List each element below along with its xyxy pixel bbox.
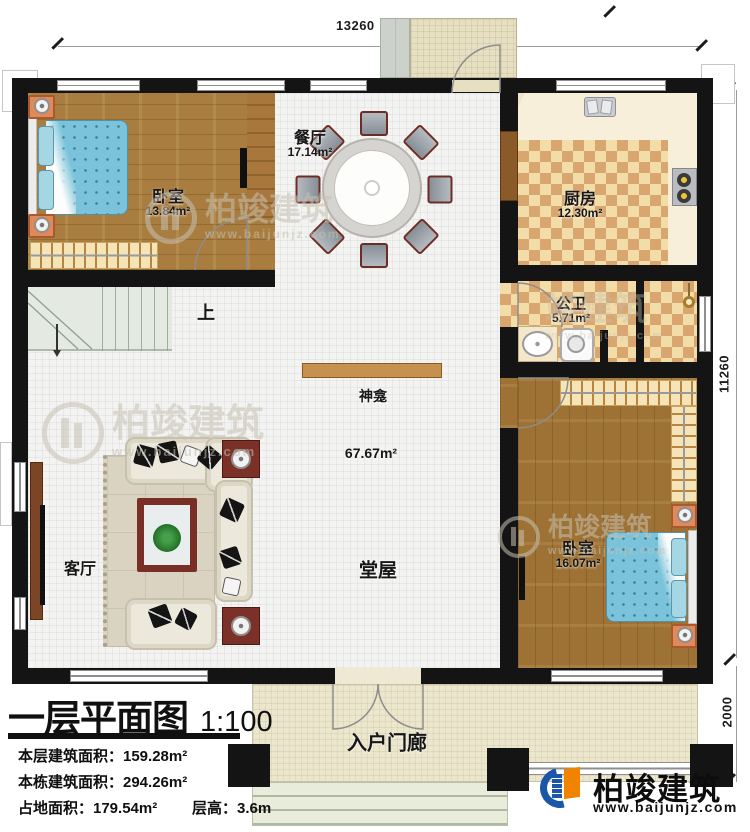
dining-chair bbox=[360, 111, 388, 136]
lamp bbox=[34, 217, 50, 233]
window-living-1 bbox=[14, 462, 26, 512]
chaise-bench bbox=[125, 598, 217, 650]
bed-pillow bbox=[38, 170, 54, 210]
pillow bbox=[221, 576, 241, 596]
tv-bedroom-right bbox=[519, 556, 525, 600]
porch-column bbox=[228, 744, 270, 787]
bath-sink bbox=[522, 331, 553, 357]
wall-bedroom-left-bottom bbox=[12, 270, 275, 287]
window-living-2 bbox=[14, 597, 26, 630]
shower-head bbox=[683, 296, 695, 308]
window-bedroom-right bbox=[551, 670, 663, 682]
window-dining bbox=[310, 80, 367, 91]
toilet-partition bbox=[636, 281, 644, 362]
door-gap-bedroom-right bbox=[500, 378, 518, 428]
wall-left bbox=[12, 78, 28, 668]
label-hall-area: 67.67m² bbox=[345, 445, 397, 461]
toilet bbox=[611, 328, 632, 353]
stair-arrow bbox=[56, 324, 58, 350]
window-kitchen bbox=[556, 80, 666, 91]
dimension-label-right: 11260 bbox=[717, 355, 732, 393]
lamp bbox=[231, 449, 251, 469]
logo-building-blue bbox=[552, 774, 562, 798]
label-bedroom-left-area: 13.84m² bbox=[146, 204, 191, 218]
porch-column bbox=[487, 748, 529, 791]
wardrobe-right-top bbox=[560, 380, 697, 406]
dining-chair bbox=[296, 176, 321, 204]
stat-building-area: 本栋建筑面积：294.26m² bbox=[18, 771, 187, 792]
dimension-tick bbox=[51, 37, 63, 49]
lamp bbox=[231, 616, 251, 636]
entry-steps bbox=[252, 782, 508, 826]
plant bbox=[153, 524, 181, 552]
exterior-platform bbox=[0, 442, 12, 526]
door-gap-bedroom-left bbox=[247, 218, 275, 270]
logo-building-orange bbox=[564, 767, 580, 799]
lamp bbox=[677, 507, 693, 523]
door-bedroom-left bbox=[195, 218, 247, 270]
door-bedroom-right bbox=[518, 378, 568, 428]
title-block: 一层平面图 1:100 bbox=[8, 688, 308, 738]
toilet bbox=[657, 328, 678, 353]
label-hall: 堂屋 bbox=[359, 556, 397, 583]
bed-headboard bbox=[688, 530, 697, 624]
stat-floor-area: 本层建筑面积：159.28m² bbox=[18, 745, 187, 766]
burner bbox=[677, 173, 691, 187]
bed-headboard bbox=[28, 118, 37, 217]
sink-basin bbox=[586, 99, 599, 114]
sink-basin bbox=[600, 99, 613, 114]
shrine-shelf bbox=[302, 363, 442, 378]
label-bathroom-area: 5.71m² bbox=[552, 311, 590, 325]
company-website: www.baijunjz.com bbox=[593, 799, 738, 815]
window-bathroom bbox=[699, 296, 711, 352]
door-gap-bathroom bbox=[500, 283, 518, 327]
stair-arrow-head bbox=[53, 350, 61, 357]
toilet-tank bbox=[608, 352, 635, 362]
pillow bbox=[156, 440, 180, 464]
stair-break-lines bbox=[28, 287, 172, 351]
toilet-tank bbox=[654, 352, 681, 362]
entry-door-left bbox=[333, 684, 378, 729]
lamp bbox=[34, 98, 50, 114]
wall-kitchen-bath bbox=[500, 265, 713, 281]
partition-bedroom-left bbox=[247, 93, 275, 218]
label-living-room: 客厅 bbox=[64, 555, 96, 579]
company-logo-icon bbox=[538, 760, 590, 818]
door-back bbox=[452, 45, 500, 93]
dimension-tick bbox=[603, 5, 615, 17]
label-stair-up: 上 bbox=[197, 299, 215, 325]
label-entry-porch: 入户门廊 bbox=[347, 727, 427, 756]
dining-chair bbox=[360, 243, 388, 268]
dimension-line-porch bbox=[736, 666, 737, 782]
window-top bbox=[197, 80, 285, 91]
title-underline bbox=[8, 733, 240, 739]
toilet-partition bbox=[600, 330, 608, 362]
wardrobe-right-side bbox=[671, 406, 697, 502]
washer-drum bbox=[567, 335, 585, 353]
dimension-tick bbox=[723, 653, 735, 665]
window-living-bottom bbox=[70, 670, 208, 682]
back-porch-mat bbox=[380, 18, 410, 78]
label-kitchen-area: 12.30m² bbox=[558, 206, 603, 220]
stat-footprint-area: 占地面积：179.54m² bbox=[18, 797, 157, 818]
wall-bath-bedroom bbox=[500, 362, 713, 378]
tv-living-room bbox=[40, 505, 45, 605]
bed-pillow bbox=[671, 538, 687, 576]
dimension-label-porch-depth: 2000 bbox=[720, 697, 735, 728]
bed-pillow bbox=[671, 580, 687, 618]
burner bbox=[677, 189, 691, 203]
entry-door-right bbox=[378, 684, 423, 729]
door-kitchen bbox=[500, 131, 518, 201]
label-bedroom-right-area: 16.07m² bbox=[556, 556, 601, 570]
dining-chair bbox=[428, 176, 453, 204]
lamp bbox=[677, 627, 693, 643]
wall-right bbox=[697, 78, 713, 684]
dimension-line-right bbox=[736, 90, 737, 658]
bed-pillow bbox=[38, 126, 54, 166]
shower-stem bbox=[688, 283, 690, 297]
label-dining-area: 17.14m² bbox=[288, 145, 333, 159]
floor-plan-sheet: 13260 11260 2000 bbox=[0, 0, 750, 832]
dimension-label-top: 13260 bbox=[336, 18, 375, 33]
stat-floor-height: 层高：3.6m bbox=[192, 797, 271, 818]
wardrobe-left bbox=[30, 242, 158, 269]
lazy-susan bbox=[364, 180, 380, 196]
window-bedroom-left bbox=[57, 80, 140, 91]
label-shrine: 神龛 bbox=[359, 386, 387, 406]
tv-bedroom-left bbox=[240, 148, 247, 188]
door-gap-entry bbox=[333, 668, 423, 684]
